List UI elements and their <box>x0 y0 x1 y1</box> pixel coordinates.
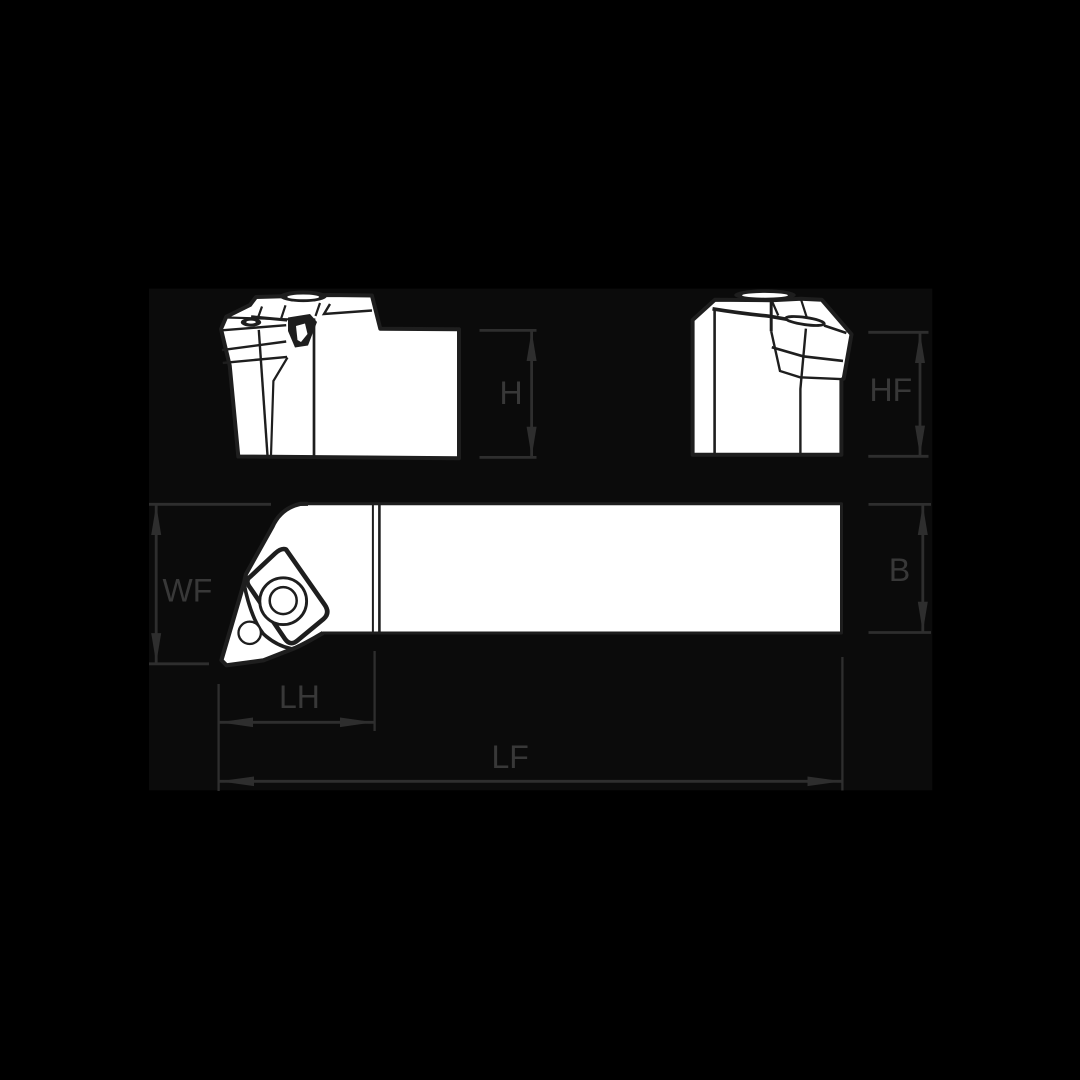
svg-text:H: H <box>500 375 523 411</box>
svg-text:HF: HF <box>870 372 913 408</box>
svg-text:LH: LH <box>279 679 320 715</box>
svg-text:WF: WF <box>163 573 213 609</box>
svg-text:B: B <box>889 552 910 588</box>
svg-text:LF: LF <box>492 739 529 775</box>
